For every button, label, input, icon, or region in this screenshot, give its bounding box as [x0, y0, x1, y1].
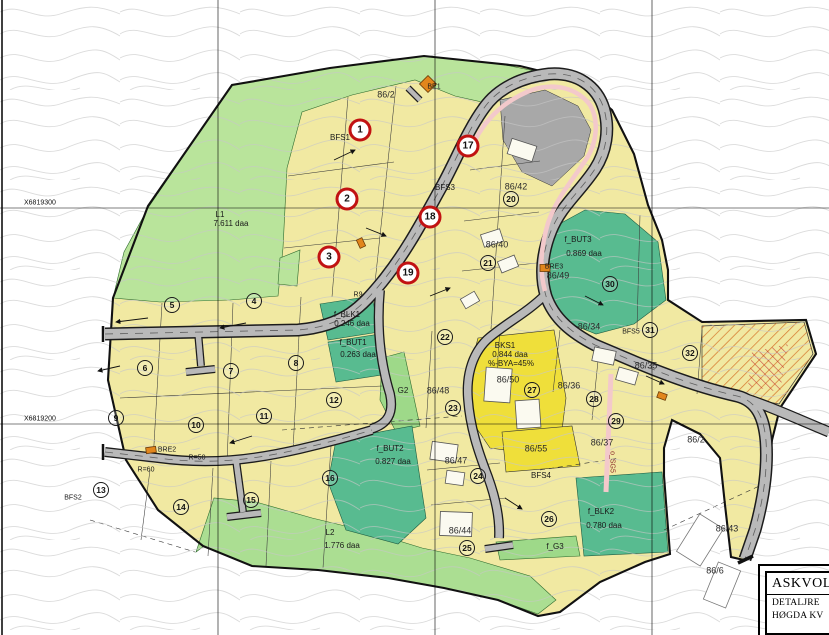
- plot-number-marker: 21: [480, 255, 496, 271]
- map-graphics: [0, 0, 829, 635]
- plot-number-marker: 25: [459, 540, 475, 556]
- plot-number-marker: 30: [602, 276, 618, 292]
- plot-number-marker: 14: [173, 499, 189, 515]
- priority-plot-marker: 2: [336, 188, 359, 211]
- plot-number-marker: 11: [256, 408, 272, 424]
- plot-number-marker: 9: [108, 410, 124, 426]
- municipality-name: ASKVOL: [767, 573, 829, 595]
- plot-number-marker: 12: [326, 392, 342, 408]
- plot-number-marker: 7: [223, 363, 239, 379]
- plot-number-marker: 26: [541, 511, 557, 527]
- plot-number-marker: 29: [608, 413, 624, 429]
- plot-number-marker: 10: [188, 417, 204, 433]
- plot-number-marker: 32: [682, 345, 698, 361]
- priority-plot-marker: 17: [457, 135, 480, 158]
- plot-number-marker: 22: [437, 329, 453, 345]
- plot-number-marker: 20: [503, 191, 519, 207]
- priority-plot-marker: 1: [349, 119, 372, 142]
- plan-name-label: HØGDA KV: [767, 608, 829, 621]
- plot-number-marker: 23: [445, 400, 461, 416]
- plot-number-marker: 15: [243, 492, 259, 508]
- plot-number-marker: 4: [246, 293, 262, 309]
- map-frame-line: [758, 564, 829, 566]
- plot-number-marker: 13: [93, 482, 109, 498]
- priority-plot-marker: 18: [419, 206, 442, 229]
- plot-number-marker: 24: [470, 468, 486, 484]
- plot-number-marker: 6: [137, 360, 153, 376]
- plan-type-label: DETALJRE: [767, 595, 829, 608]
- priority-plot-marker: 19: [397, 262, 420, 285]
- zoning-plan-map: 86/2 BE1 BFS1 BFS3 86/42 L1 7.611 daa 86…: [0, 0, 829, 635]
- plot-number-marker: 27: [524, 382, 540, 398]
- plot-number-marker: 8: [288, 355, 304, 371]
- plot-number-marker: 5: [164, 297, 180, 313]
- map-frame-line: [758, 564, 760, 635]
- plot-number-marker: 16: [322, 470, 338, 486]
- title-block: ASKVOL DETALJRE HØGDA KV: [765, 571, 829, 635]
- priority-plot-marker: 3: [318, 246, 341, 269]
- plot-number-marker: 28: [586, 391, 602, 407]
- plot-number-marker: 31: [642, 322, 658, 338]
